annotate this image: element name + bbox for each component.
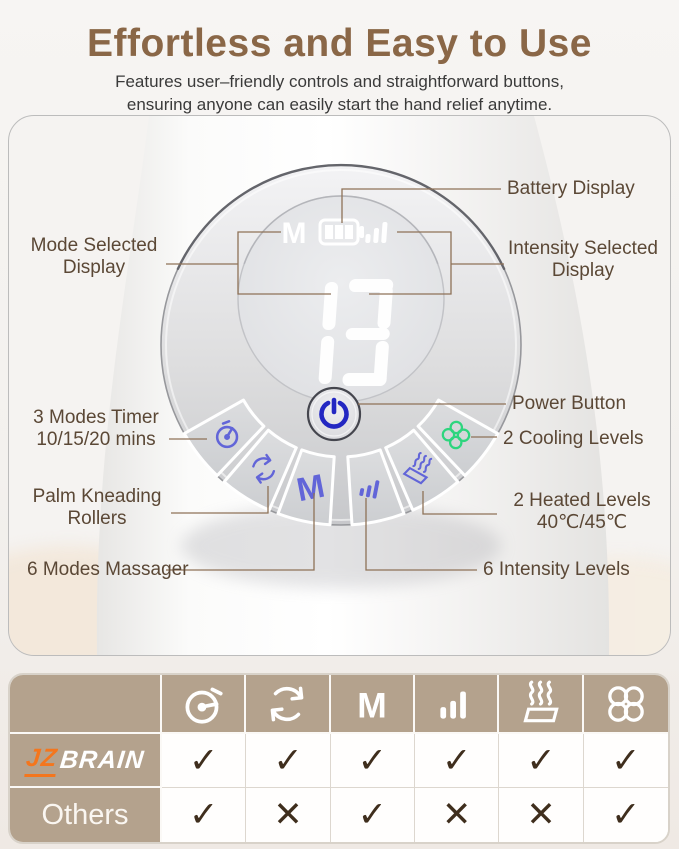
heat-icon <box>515 679 565 729</box>
brand-logo: JZ BRAIN <box>10 734 162 788</box>
callout-power: Power Button <box>512 393 652 415</box>
brand-heat-mark: ✓ <box>499 734 583 788</box>
rotation-icon <box>262 679 312 729</box>
device-panel: M <box>8 115 671 656</box>
mode-indicator: M <box>282 217 307 250</box>
callout-intensity-levels-text: 6 Intensity Levels <box>483 559 630 580</box>
callout-mode-line1: Mode Selected <box>19 235 169 257</box>
callout-timer: 3 Modes Timer 10/15/20 mins <box>21 407 171 451</box>
column-rotation <box>246 675 330 734</box>
subtitle-line-1: Features user–friendly controls and stra… <box>0 70 679 93</box>
callout-mode: Mode Selected Display <box>19 235 169 279</box>
callout-battery-text: Battery Display <box>507 178 635 199</box>
table-corner-cell <box>10 675 162 734</box>
callout-intensity-levels: 6 Intensity Levels <box>483 559 663 581</box>
callout-heated-line2: 40℃/45℃ <box>497 512 667 534</box>
others-timer-mark: ✓ <box>162 788 246 842</box>
callout-heated-line1: 2 Heated Levels <box>497 490 667 512</box>
page-title: Effortless and Easy to Use <box>0 0 679 66</box>
brand-logo-brain: BRAIN <box>58 746 145 775</box>
brand-cooling-mark: ✓ <box>584 734 668 788</box>
callout-battery: Battery Display <box>507 178 667 200</box>
m-mode-icon: M <box>347 679 397 729</box>
brand-timer-mark: ✓ <box>162 734 246 788</box>
callout-timer-line2: 10/15/20 mins <box>21 429 171 451</box>
column-cooling <box>584 675 668 734</box>
callout-heated: 2 Heated Levels 40℃/45℃ <box>497 490 667 534</box>
callout-mode-line2: Display <box>19 257 169 279</box>
others-intensity-mark: ✕ <box>415 788 499 842</box>
brand-logo-jz: JZ <box>25 744 60 777</box>
callout-intensity-display: Intensity Selected Display <box>497 238 669 282</box>
callout-cooling-text: 2 Cooling Levels <box>503 428 643 449</box>
callout-intensity-line2: Display <box>497 260 669 282</box>
column-intensity <box>415 675 499 734</box>
subtitle-line-2: ensuring anyone can easily start the han… <box>0 93 679 116</box>
svg-text:M: M <box>357 685 387 725</box>
callout-intensity-line1: Intensity Selected <box>497 238 669 260</box>
comparison-table: M JZ BRAIN ✓ ✓ ✓ ✓ ✓ ✓ Others ✓ ✕ ✓ ✕ ✕ <box>8 673 670 844</box>
callout-cooling: 2 Cooling Levels <box>503 428 663 450</box>
callout-palm: Palm Kneading Rollers <box>21 486 173 530</box>
callout-timer-line1: 3 Modes Timer <box>21 407 171 429</box>
column-timer <box>162 675 246 734</box>
header: Effortless and Easy to Use Features user… <box>0 0 679 116</box>
callout-modes: 6 Modes Massager <box>27 559 197 581</box>
callout-power-text: Power Button <box>512 393 626 414</box>
others-heat-mark: ✕ <box>499 788 583 842</box>
others-cooling-mark: ✓ <box>584 788 668 842</box>
callout-palm-line2: Rollers <box>21 508 173 530</box>
power-button[interactable] <box>308 388 360 440</box>
timer-icon <box>178 679 228 729</box>
brand-m-mode-mark: ✓ <box>331 734 415 788</box>
cooling-fan-icon <box>601 679 651 729</box>
page: Effortless and Easy to Use Features user… <box>0 0 679 849</box>
callout-palm-line1: Palm Kneading <box>21 486 173 508</box>
others-m-mode-mark: ✓ <box>331 788 415 842</box>
intensity-icon <box>431 679 481 729</box>
others-label: Others <box>10 788 162 842</box>
callout-modes-text: 6 Modes Massager <box>27 559 189 580</box>
column-m-mode: M <box>331 675 415 734</box>
brand-rotation-mark: ✓ <box>246 734 330 788</box>
others-rotation-mark: ✕ <box>246 788 330 842</box>
column-heat <box>499 675 583 734</box>
brand-intensity-mark: ✓ <box>415 734 499 788</box>
